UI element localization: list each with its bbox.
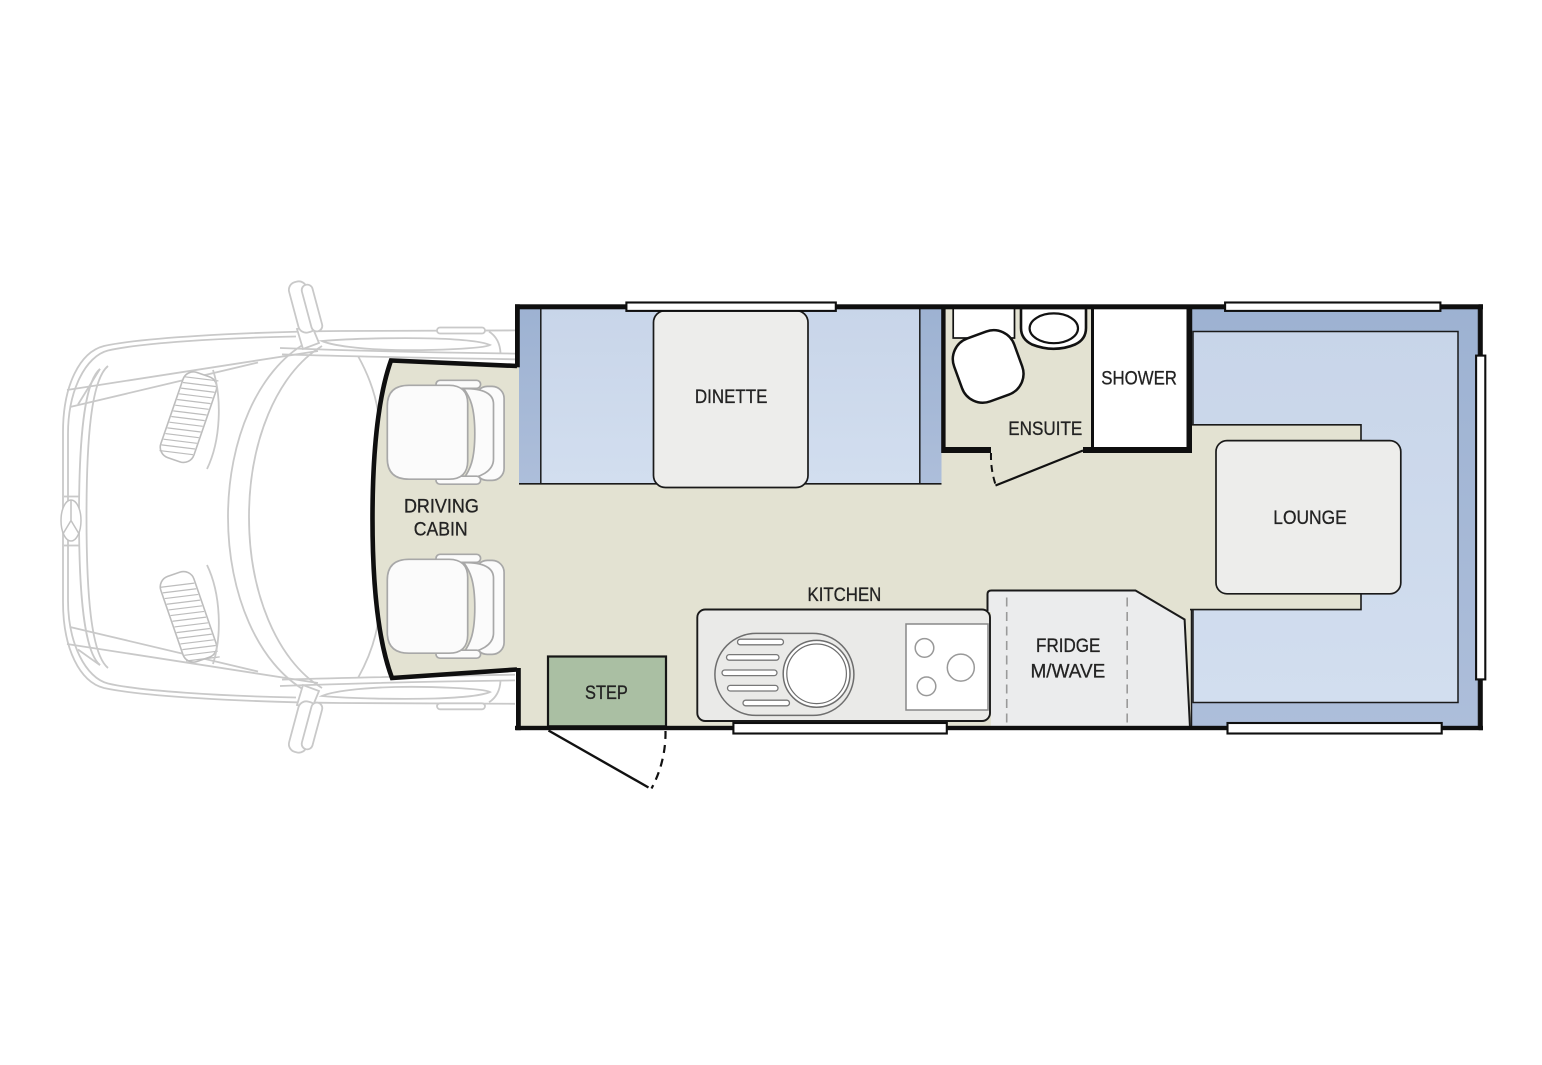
svg-text:LOUNGE: LOUNGE xyxy=(1273,507,1346,529)
svg-text:DINETTE: DINETTE xyxy=(695,386,768,408)
svg-text:KITCHEN: KITCHEN xyxy=(808,584,882,606)
svg-text:ENSUITE: ENSUITE xyxy=(1008,418,1082,440)
svg-text:STEP: STEP xyxy=(585,683,628,704)
svg-text:M/WAVE: M/WAVE xyxy=(1031,660,1106,682)
svg-text:DRIVING: DRIVING xyxy=(404,495,479,517)
svg-text:CABIN: CABIN xyxy=(414,518,468,540)
svg-text:FRIDGE: FRIDGE xyxy=(1036,635,1100,657)
svg-text:SHOWER: SHOWER xyxy=(1101,368,1177,390)
